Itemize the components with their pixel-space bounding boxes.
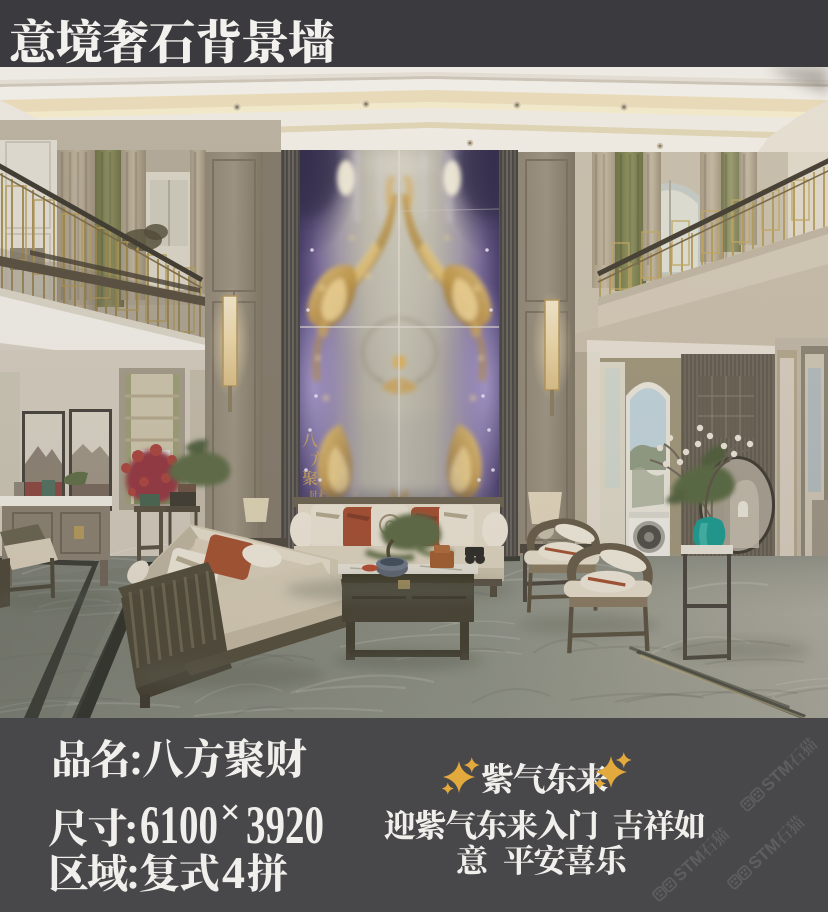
svg-text:4: 4 [222,847,245,898]
svg-text:×: × [220,792,241,832]
svg-text:3920: 3920 [246,795,324,855]
svg-text:6100: 6100 [140,795,218,855]
svg-text::: : [124,804,139,853]
